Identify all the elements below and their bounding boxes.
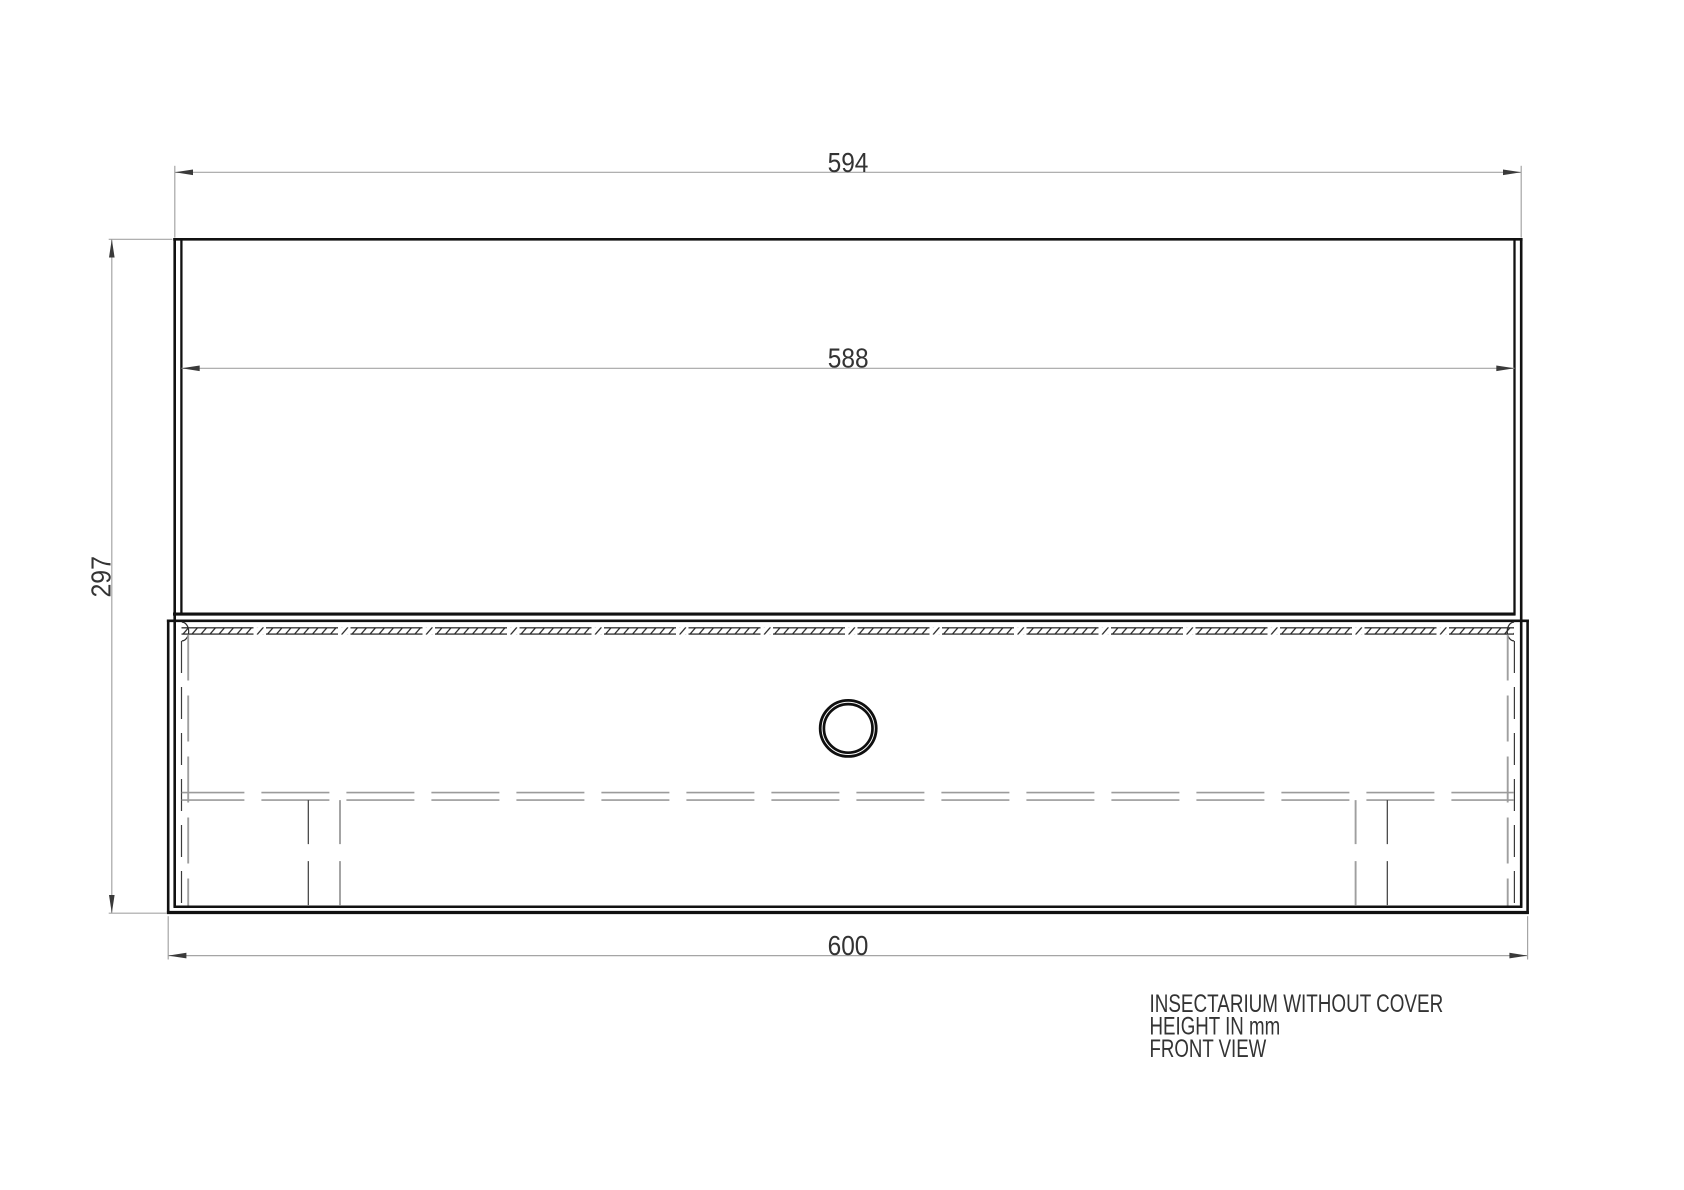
svg-text:588: 588 xyxy=(828,343,869,374)
svg-text:297: 297 xyxy=(85,556,116,598)
svg-text:FRONT VIEW: FRONT VIEW xyxy=(1150,1036,1267,1063)
svg-text:600: 600 xyxy=(828,930,869,961)
svg-text:594: 594 xyxy=(828,147,869,178)
